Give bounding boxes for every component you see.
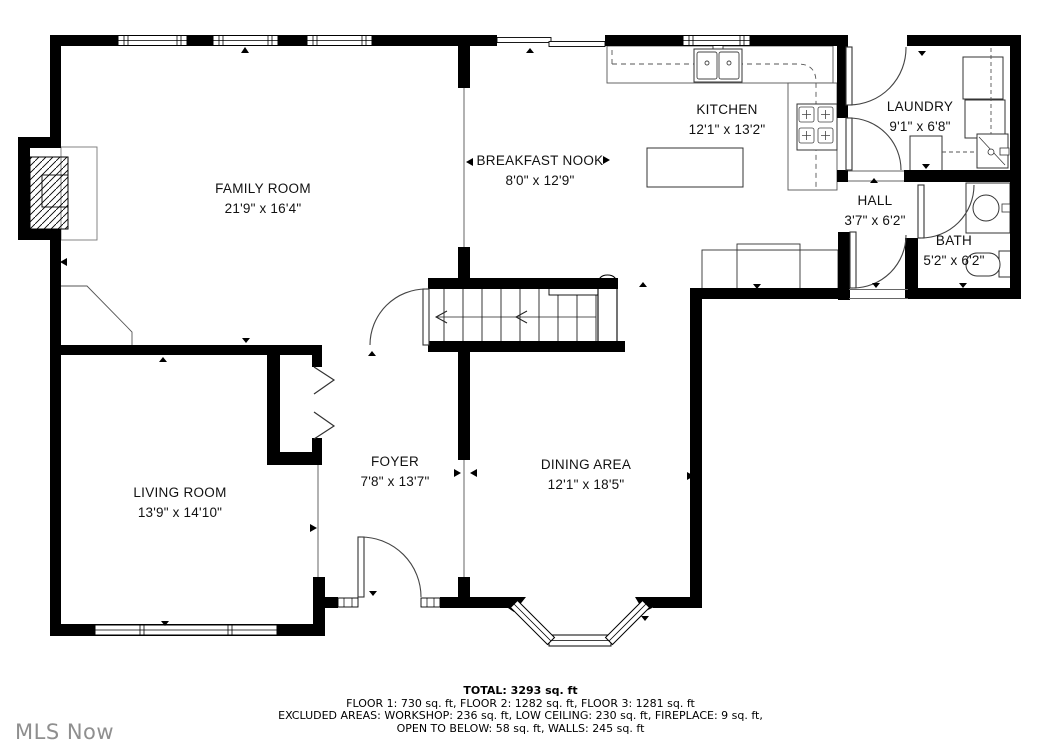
floorplan-drawing [0, 0, 1041, 755]
window [307, 36, 372, 46]
room-label-foyer: FOYER 7'8" x 13'7" [361, 452, 430, 491]
summary-total: TOTAL: 3293 sq. ft [0, 685, 1041, 698]
room-label-dining-area: DINING AREA 12'1" x 18'5" [541, 455, 631, 494]
hall-door [850, 232, 906, 288]
opening-laundry-hall [848, 171, 904, 181]
window [118, 36, 187, 46]
room-name: LIVING ROOM [133, 483, 226, 503]
room-name: KITCHEN [689, 100, 766, 120]
room-label-breakfast-nook: BREAKFAST NOOK 8'0" x 12'9" [477, 151, 604, 190]
room-name: FOYER [361, 452, 430, 472]
bay-window [511, 601, 650, 647]
room-dims: 21'9" x 16'4" [215, 199, 311, 219]
sidelight-window [338, 598, 358, 607]
stairs-door [370, 289, 429, 345]
pass-through-window [497, 38, 605, 47]
sidelight-window [421, 598, 440, 607]
room-label-kitchen: KITCHEN 12'1" x 13'2" [689, 100, 766, 139]
room-name: LAUNDRY [887, 97, 953, 117]
room-dims: 9'1" x 6'8" [887, 117, 953, 137]
room-dims: 7'8" x 13'7" [361, 472, 430, 492]
fireplace [30, 147, 97, 240]
room-name: FAMILY ROOM [215, 179, 311, 199]
room-name: BREAKFAST NOOK [477, 151, 604, 171]
summary-excluded-line1: EXCLUDED AREAS: WORKSHOP: 236 sq. ft, LO… [0, 710, 1041, 723]
front-door [358, 537, 421, 597]
room-label-laundry: LAUNDRY 9'1" x 6'8" [887, 97, 953, 136]
doors [358, 47, 974, 597]
room-dims: 12'1" x 13'2" [689, 120, 766, 140]
room-dims: 13'9" x 14'10" [133, 503, 226, 523]
room-dims: 3'7" x 6'2" [844, 211, 905, 231]
summary-excluded-line2: OPEN TO BELOW: 58 sq. ft, WALLS: 245 sq.… [0, 723, 1041, 736]
room-dims: 12'1" x 18'5" [541, 475, 631, 495]
floor-plan: FAMILY ROOM 21'9" x 16'4" BREAKFAST NOOK… [0, 0, 1041, 755]
room-dims: 8'0" x 12'9" [477, 171, 604, 191]
room-label-hall: HALL 3'7" x 6'2" [844, 191, 905, 230]
walls [18, 35, 1021, 636]
window [95, 625, 277, 635]
window [683, 36, 750, 46]
room-label-family-room: FAMILY ROOM 21'9" x 16'4" [215, 179, 311, 218]
closet-bifold-doors [314, 367, 334, 439]
room-name: BATH [923, 231, 984, 251]
area-summary: TOTAL: 3293 sq. ft FLOOR 1: 730 sq. ft, … [0, 685, 1041, 735]
room-name: HALL [844, 191, 905, 211]
mls-watermark: MLS Now [15, 720, 114, 744]
room-label-living-room: LIVING ROOM 13'9" x 14'10" [133, 483, 226, 522]
room-name: DINING AREA [541, 455, 631, 475]
window [213, 36, 278, 46]
opening-hall-bottom [849, 290, 908, 299]
room-dims: 5'2" x 6'2" [923, 251, 984, 271]
room-label-bath: BATH 5'2" x 6'2" [923, 231, 984, 270]
